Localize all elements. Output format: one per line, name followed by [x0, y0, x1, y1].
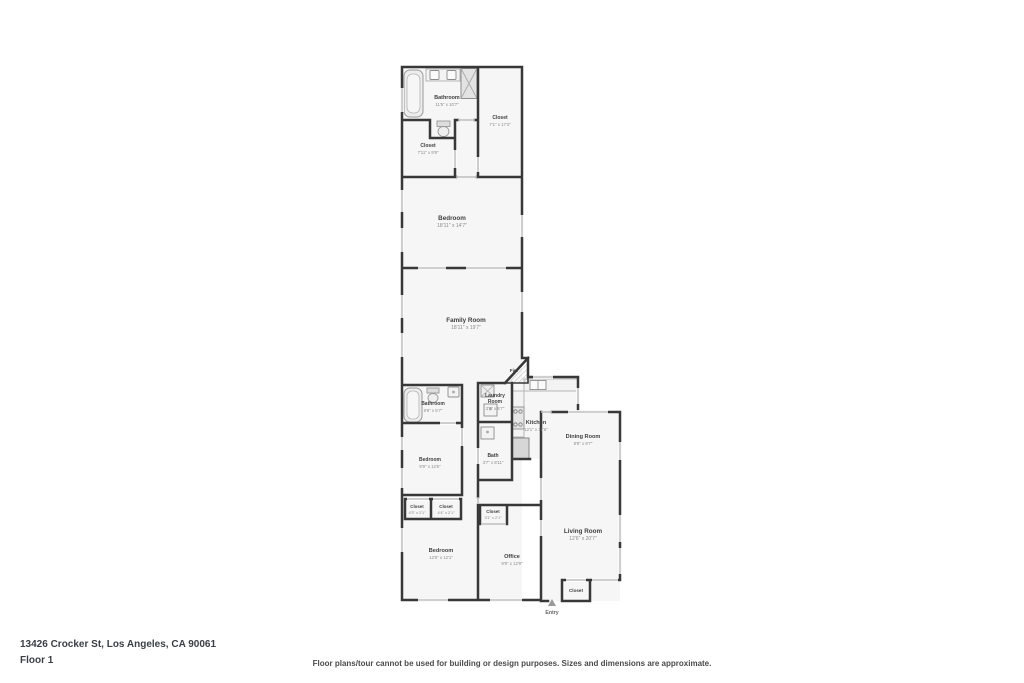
- svg-text:Closet: Closet: [486, 509, 500, 514]
- svg-text:4'3" x 2'1": 4'3" x 2'1": [408, 510, 426, 515]
- svg-text:9'9" x 12'5": 9'9" x 12'5": [419, 464, 441, 469]
- svg-text:Kitchen: Kitchen: [526, 420, 547, 426]
- svg-text:18'11" x 19'7": 18'11" x 19'7": [451, 325, 481, 331]
- svg-text:Living Room: Living Room: [564, 528, 603, 535]
- disclaimer-text: Floor plans/tour cannot be used for buil…: [0, 659, 1024, 668]
- fridge-icon: [512, 438, 529, 459]
- svg-text:Bedroom: Bedroom: [419, 457, 442, 463]
- svg-text:Closet: Closet: [492, 115, 508, 121]
- floor-plan-page: Bathroom 11'5" x 10'7" Closet 7'1" x 17'…: [0, 0, 1024, 683]
- bathtub-icon: [404, 388, 422, 422]
- svg-text:3'7" x 8'11": 3'7" x 8'11": [483, 460, 504, 465]
- room-label-fire: Fire: [510, 368, 519, 373]
- room-label-laundry: Laundry Room 3'7" x 5'7": [485, 393, 505, 411]
- sink-icon: [481, 427, 494, 439]
- room-label-closet-entry: Closet: [569, 588, 584, 593]
- svg-text:Closet: Closet: [420, 143, 436, 149]
- svg-text:3'1" x 2'1": 3'1" x 2'1": [484, 515, 502, 520]
- svg-text:3'7" x 5'7": 3'7" x 5'7": [486, 406, 505, 411]
- shower-icon: [461, 69, 477, 99]
- svg-text:Dining Room: Dining Room: [566, 434, 601, 440]
- sink-icon: [448, 387, 459, 397]
- svg-text:8'8" x 9'7": 8'8" x 9'7": [574, 441, 593, 446]
- svg-text:Entry: Entry: [545, 610, 558, 616]
- svg-text:12'1" x 17'6": 12'1" x 17'6": [524, 427, 548, 432]
- svg-text:7'1" x 17'3": 7'1" x 17'3": [489, 122, 511, 127]
- svg-text:11'5" x 10'7": 11'5" x 10'7": [435, 102, 459, 107]
- svg-text:Room: Room: [488, 399, 503, 405]
- svg-text:Bath: Bath: [487, 453, 498, 459]
- svg-text:7'11" x 9'9": 7'11" x 9'9": [418, 150, 439, 155]
- toilet-icon: [437, 121, 450, 137]
- room-label-closet-c: Closet 3'1" x 2'1": [484, 509, 502, 520]
- svg-text:Family Room: Family Room: [446, 317, 486, 324]
- room-label-closet-b: Closet 4'4" x 2'1": [437, 504, 455, 515]
- svg-text:4'4" x 2'1": 4'4" x 2'1": [437, 510, 455, 515]
- svg-text:Bathroom: Bathroom: [434, 95, 460, 101]
- stove-icon: [512, 407, 524, 429]
- bathtub-icon: [404, 70, 423, 117]
- svg-text:18'11" x 14'7": 18'11" x 14'7": [437, 223, 467, 229]
- svg-text:12'5" x 12'1": 12'5" x 12'1": [429, 555, 453, 560]
- svg-text:12'6" x 20'7": 12'6" x 20'7": [569, 536, 597, 542]
- svg-text:9'9" x 5'7": 9'9" x 5'7": [424, 408, 443, 413]
- entry-label: Entry: [545, 610, 558, 616]
- kitchen-sink-icon: [530, 381, 546, 390]
- svg-text:Bedroom: Bedroom: [429, 548, 454, 554]
- svg-text:Closet: Closet: [569, 588, 584, 593]
- svg-text:Closet: Closet: [410, 504, 424, 509]
- svg-text:Closet: Closet: [439, 504, 453, 509]
- svg-text:Bathroom: Bathroom: [421, 401, 445, 407]
- svg-text:Bedroom: Bedroom: [438, 215, 466, 222]
- room-label-closet-a: Closet 4'3" x 2'1": [408, 504, 426, 515]
- address-text: 13426 Crocker St, Los Angeles, CA 90061: [20, 639, 216, 650]
- svg-text:Office: Office: [504, 554, 520, 560]
- floor-plan-drawing: Bathroom 11'5" x 10'7" Closet 7'1" x 17'…: [0, 0, 1024, 683]
- vanity-sink-icon: [426, 69, 460, 81]
- svg-text:Fire: Fire: [510, 368, 519, 373]
- svg-text:9'9" x 12'9": 9'9" x 12'9": [501, 561, 523, 566]
